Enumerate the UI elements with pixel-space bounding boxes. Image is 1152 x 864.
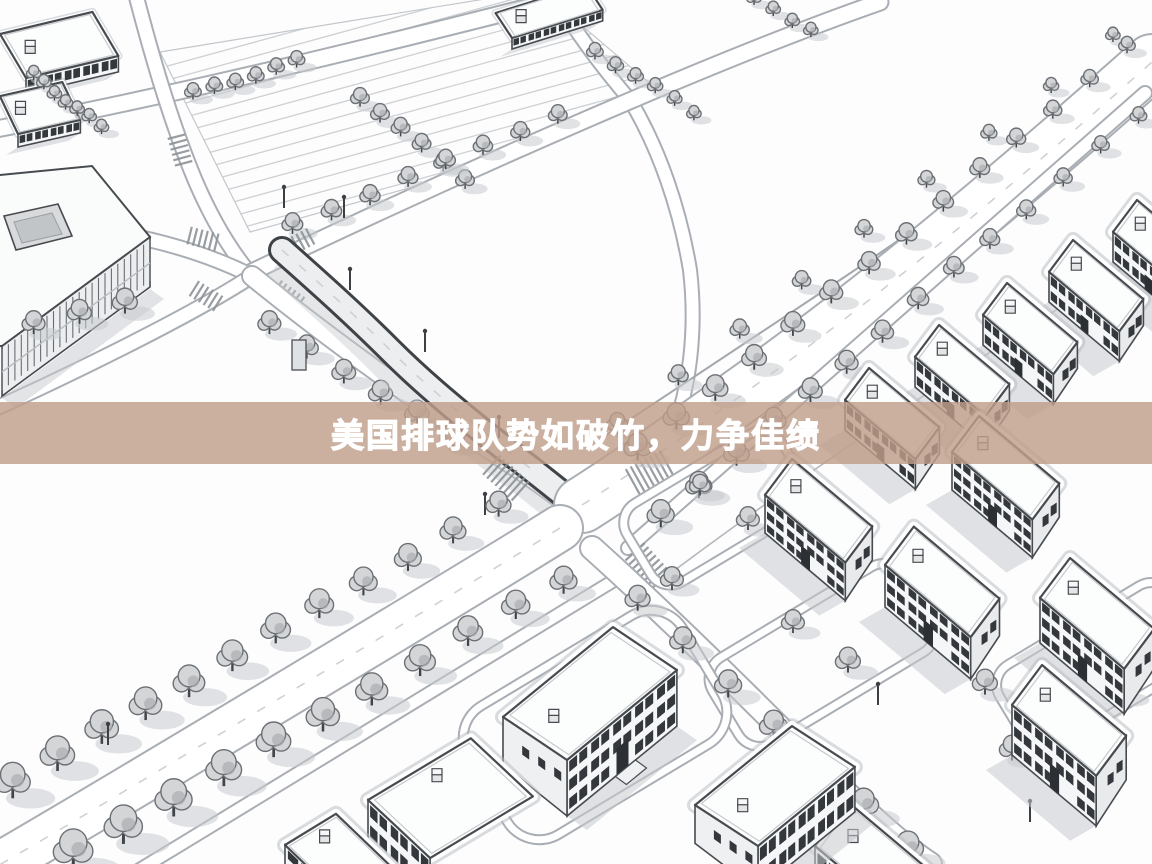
tree <box>261 613 291 638</box>
tree-canopy <box>268 318 276 326</box>
tree-canopy <box>1062 174 1069 181</box>
lamppost <box>876 682 880 686</box>
lamppost <box>348 267 352 271</box>
tree-canopy <box>557 111 564 118</box>
headline-banner: 美国排球队势如破竹，力争佳绩 <box>0 402 1152 464</box>
tree-canopy <box>421 140 428 147</box>
tree-canopy <box>953 263 961 271</box>
tree-canopy <box>274 623 285 634</box>
tree-canopy <box>699 481 707 489</box>
tree <box>85 710 118 738</box>
tree <box>896 223 917 241</box>
tree-canopy <box>222 762 235 775</box>
article-header-image: 美国排球队势如破竹，力争佳绩 <box>0 0 1152 864</box>
tree-canopy <box>801 277 808 284</box>
tree-canopy <box>881 327 889 335</box>
tree-canopy <box>331 206 338 213</box>
tree-canopy <box>988 130 994 136</box>
tree-canopy <box>192 88 198 94</box>
tree-canopy <box>419 655 430 666</box>
tree-canopy <box>306 343 315 352</box>
tree-canopy <box>989 235 996 242</box>
tree-canopy <box>1015 134 1022 141</box>
tree-canopy <box>917 294 925 302</box>
tree <box>933 191 954 209</box>
tree <box>970 158 990 175</box>
tree-canopy <box>76 106 81 111</box>
tree <box>502 590 530 614</box>
tree <box>351 88 370 104</box>
tree <box>1081 69 1098 84</box>
tree <box>981 124 997 138</box>
tree-canopy <box>942 197 950 205</box>
tree-canopy <box>809 386 818 395</box>
tree-canopy <box>467 626 478 637</box>
roof-unit <box>867 385 877 391</box>
tree <box>835 647 860 668</box>
tree-canopy <box>65 100 70 105</box>
tree-canopy <box>1138 112 1144 118</box>
tree-canopy <box>379 110 386 117</box>
tree-canopy <box>275 63 281 69</box>
tree-canopy <box>739 325 746 332</box>
tree <box>258 311 281 330</box>
tree <box>1007 128 1026 144</box>
tree-canopy <box>727 679 737 689</box>
tree-canopy <box>693 110 698 115</box>
tree-canopy <box>519 128 526 135</box>
tree-canopy <box>846 358 854 366</box>
roof-unit <box>320 830 330 836</box>
tree <box>550 566 577 589</box>
tree-canopy <box>747 514 755 522</box>
building <box>0 82 80 155</box>
tree-canopy <box>984 677 993 686</box>
tree-canopy <box>482 142 489 149</box>
tree-canopy <box>43 79 48 84</box>
roof-unit <box>1135 217 1145 223</box>
tree-canopy <box>1126 42 1132 48</box>
tree <box>0 762 30 792</box>
tree-canopy <box>654 83 660 89</box>
lamppost <box>106 722 110 726</box>
tree <box>730 319 749 335</box>
roof-unit <box>913 549 923 555</box>
tree <box>792 271 810 287</box>
tree-canopy <box>214 83 220 89</box>
tree <box>217 640 248 666</box>
tree <box>511 122 530 138</box>
tree-canopy <box>124 296 133 305</box>
tree-canopy <box>235 79 241 85</box>
tree-canopy <box>635 73 641 79</box>
roof-unit <box>516 10 526 16</box>
tree <box>1043 77 1058 90</box>
tree-canopy <box>101 124 106 129</box>
tree <box>305 589 334 613</box>
tree <box>918 170 935 184</box>
lamppost <box>342 195 346 199</box>
tree <box>321 200 342 217</box>
tree-canopy <box>188 675 200 687</box>
tree-canopy <box>562 575 572 585</box>
tree <box>486 491 511 512</box>
tree-canopy <box>321 709 333 721</box>
tree <box>1106 27 1121 39</box>
roof-unit <box>1068 581 1078 587</box>
roof-unit <box>1040 688 1050 694</box>
tree <box>736 507 759 526</box>
tree-canopy <box>54 90 59 95</box>
tree <box>398 167 418 184</box>
roof-unit <box>432 775 442 782</box>
roof-unit <box>1005 300 1015 306</box>
tree-canopy <box>810 27 815 32</box>
tree-canopy <box>33 70 38 75</box>
tree <box>129 687 162 715</box>
tree-canopy <box>792 319 801 328</box>
tree-canopy <box>369 191 376 198</box>
tree-canopy <box>636 594 645 603</box>
tree-canopy <box>452 526 461 535</box>
roof-unit <box>25 40 35 46</box>
tree-canopy <box>863 225 869 231</box>
tree <box>1044 100 1062 116</box>
roof-unit <box>1068 587 1078 594</box>
tree-canopy <box>78 307 87 316</box>
tree-canopy <box>318 598 329 609</box>
lamppost <box>423 329 427 333</box>
tree-canopy <box>753 353 762 362</box>
tree <box>972 669 997 690</box>
tree-canopy <box>671 574 679 582</box>
tree-canopy <box>56 747 69 760</box>
tree-canopy <box>343 367 352 376</box>
building <box>695 726 873 864</box>
roof-unit <box>913 555 923 562</box>
tree-canopy <box>615 62 621 68</box>
tree-canopy <box>445 156 452 163</box>
tree-canopy <box>296 56 302 62</box>
roof-unit <box>516 16 526 23</box>
tree <box>360 185 380 202</box>
roof-unit <box>549 709 559 715</box>
tree-canopy <box>33 318 41 326</box>
tree-canopy <box>682 635 692 645</box>
tree <box>440 517 466 539</box>
roof-unit <box>738 805 748 812</box>
tree-canopy <box>1052 106 1059 113</box>
tree-canopy <box>714 383 723 392</box>
tree-canopy <box>1100 141 1106 147</box>
tree-canopy <box>1089 75 1095 81</box>
roof-unit <box>16 101 26 107</box>
tree-canopy <box>370 683 382 695</box>
tree-canopy <box>677 371 684 378</box>
roof-unit <box>791 480 801 486</box>
tree-canopy <box>88 113 93 118</box>
headline-text: 美国排球队势如破竹，力争佳绩 <box>331 409 821 457</box>
tree-canopy <box>362 576 372 586</box>
tree <box>288 51 305 65</box>
roof-unit <box>937 348 947 355</box>
tree <box>453 616 483 641</box>
roof-unit <box>1071 257 1081 263</box>
tree-canopy <box>497 499 506 508</box>
tree-canopy <box>674 96 679 101</box>
tree-canopy <box>847 655 856 664</box>
roof-unit <box>25 46 35 53</box>
roof-unit <box>1071 263 1081 270</box>
roof-unit <box>1135 223 1145 230</box>
roof-unit <box>320 836 330 843</box>
tree <box>40 736 74 765</box>
tree-canopy <box>407 173 414 180</box>
tree-canopy <box>11 774 24 787</box>
building <box>859 527 1000 695</box>
tree-canopy <box>1112 32 1117 37</box>
lamppost <box>282 185 286 189</box>
tree-canopy <box>400 124 407 131</box>
roof-unit <box>937 342 947 348</box>
lamppost <box>483 492 487 496</box>
tree-canopy <box>773 6 778 11</box>
tree <box>820 280 843 300</box>
tree-canopy <box>979 164 986 171</box>
tree <box>781 312 805 332</box>
tree-canopy <box>792 617 800 625</box>
tree-canopy <box>926 176 932 182</box>
roof-unit <box>791 486 801 493</box>
tree-canopy <box>71 842 85 856</box>
tree <box>349 567 377 591</box>
bridge-pillar <box>292 340 306 370</box>
tree <box>405 645 436 671</box>
tree <box>173 665 205 692</box>
roof-unit <box>1040 694 1050 701</box>
tree-canopy <box>659 509 669 519</box>
tree <box>394 544 421 567</box>
tree-canopy <box>272 733 285 746</box>
tree-canopy <box>792 18 797 23</box>
building <box>739 459 872 616</box>
tree <box>548 105 567 121</box>
tree-canopy <box>464 176 471 183</box>
tree-canopy <box>407 552 417 562</box>
tree-canopy <box>359 94 366 101</box>
tree-canopy <box>868 259 876 267</box>
tree-canopy <box>231 650 242 661</box>
tree-canopy <box>122 818 136 832</box>
roof-unit <box>1005 306 1015 313</box>
tree-canopy <box>291 220 299 228</box>
roof-unit <box>738 799 748 805</box>
tree-canopy <box>1025 206 1032 213</box>
roof-unit <box>16 107 26 114</box>
roof-unit <box>432 769 442 775</box>
roof-unit <box>867 391 877 398</box>
tree <box>473 135 492 151</box>
tree-canopy <box>1050 83 1056 89</box>
tree-canopy <box>255 72 261 78</box>
tree-canopy <box>514 600 524 610</box>
tree-canopy <box>380 388 389 397</box>
tree-canopy <box>830 288 838 296</box>
tree-canopy <box>172 791 186 805</box>
tree-canopy <box>594 48 600 54</box>
tree-canopy <box>144 698 156 710</box>
tree-canopy <box>905 230 913 238</box>
roof-unit <box>549 715 559 722</box>
tree <box>855 220 873 235</box>
